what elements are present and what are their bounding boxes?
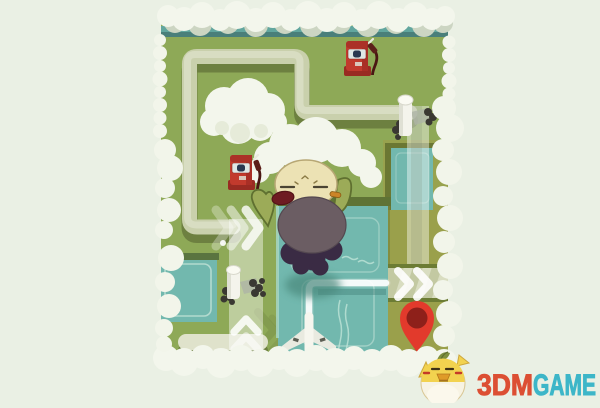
svg-text:GAME: GAME: [533, 369, 596, 402]
svg-text:3DM: 3DM: [477, 369, 533, 402]
